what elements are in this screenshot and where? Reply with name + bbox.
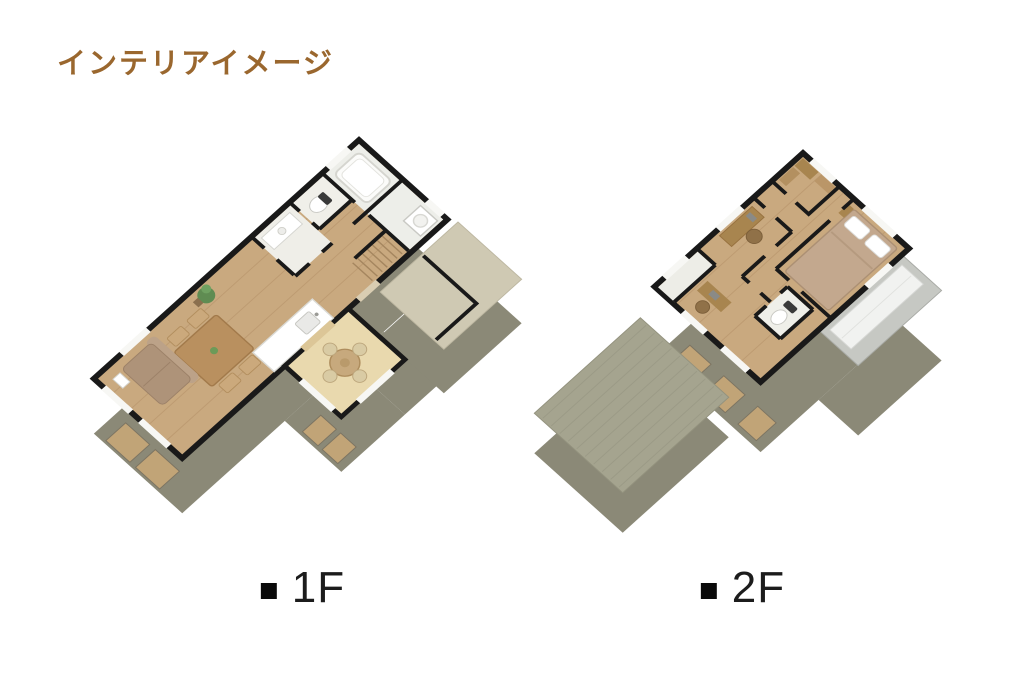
- page: インテリアイメージ ■ 1F ■ 2F: [0, 0, 1024, 683]
- floor-label-1f: ■ 1F: [90, 564, 514, 612]
- floor-plan-1f-render: [94, 140, 522, 564]
- floor-label-text-2f: 2F: [732, 563, 785, 613]
- floor-label-text-1f: 1F: [292, 563, 345, 613]
- page-title: インテリアイメージ: [57, 40, 334, 82]
- floor-plan-2f-render: [534, 153, 948, 533]
- floor-marker-square-1f: ■: [259, 573, 279, 606]
- floor-label-2f: ■ 2F: [546, 564, 938, 612]
- floor-marker-square-2f: ■: [699, 573, 719, 606]
